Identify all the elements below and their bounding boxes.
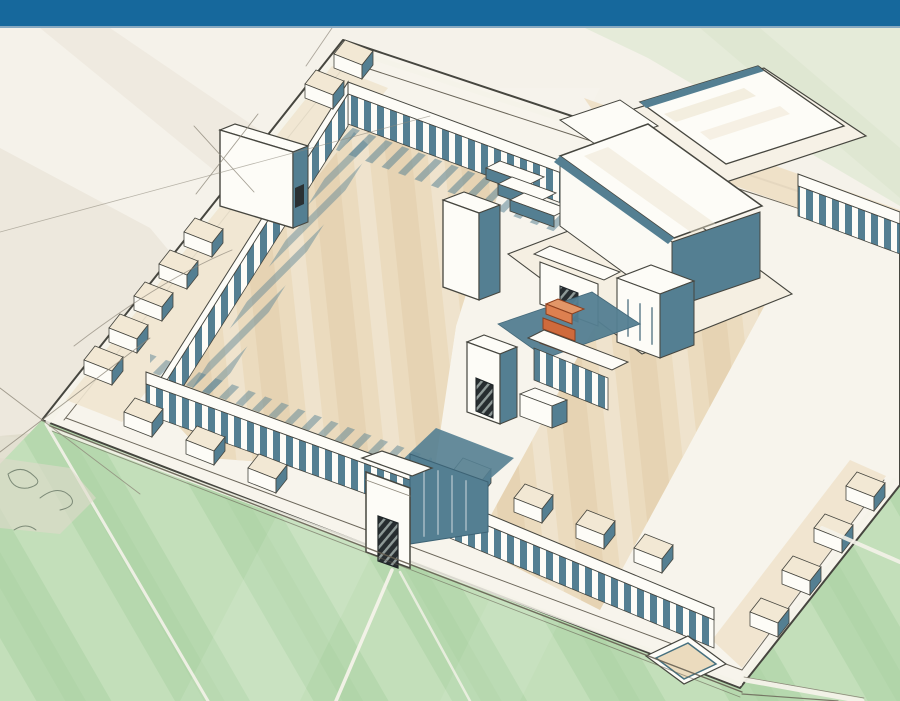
inner-pylon [443,192,500,300]
temple-complex-illustration [0,28,900,701]
top-header-bar [0,0,900,28]
screenshot [0,0,900,701]
inner-gate-tower [467,335,517,424]
east-shrine [617,265,694,358]
south-gate-door [378,516,398,568]
inner-gate-door [476,378,493,418]
